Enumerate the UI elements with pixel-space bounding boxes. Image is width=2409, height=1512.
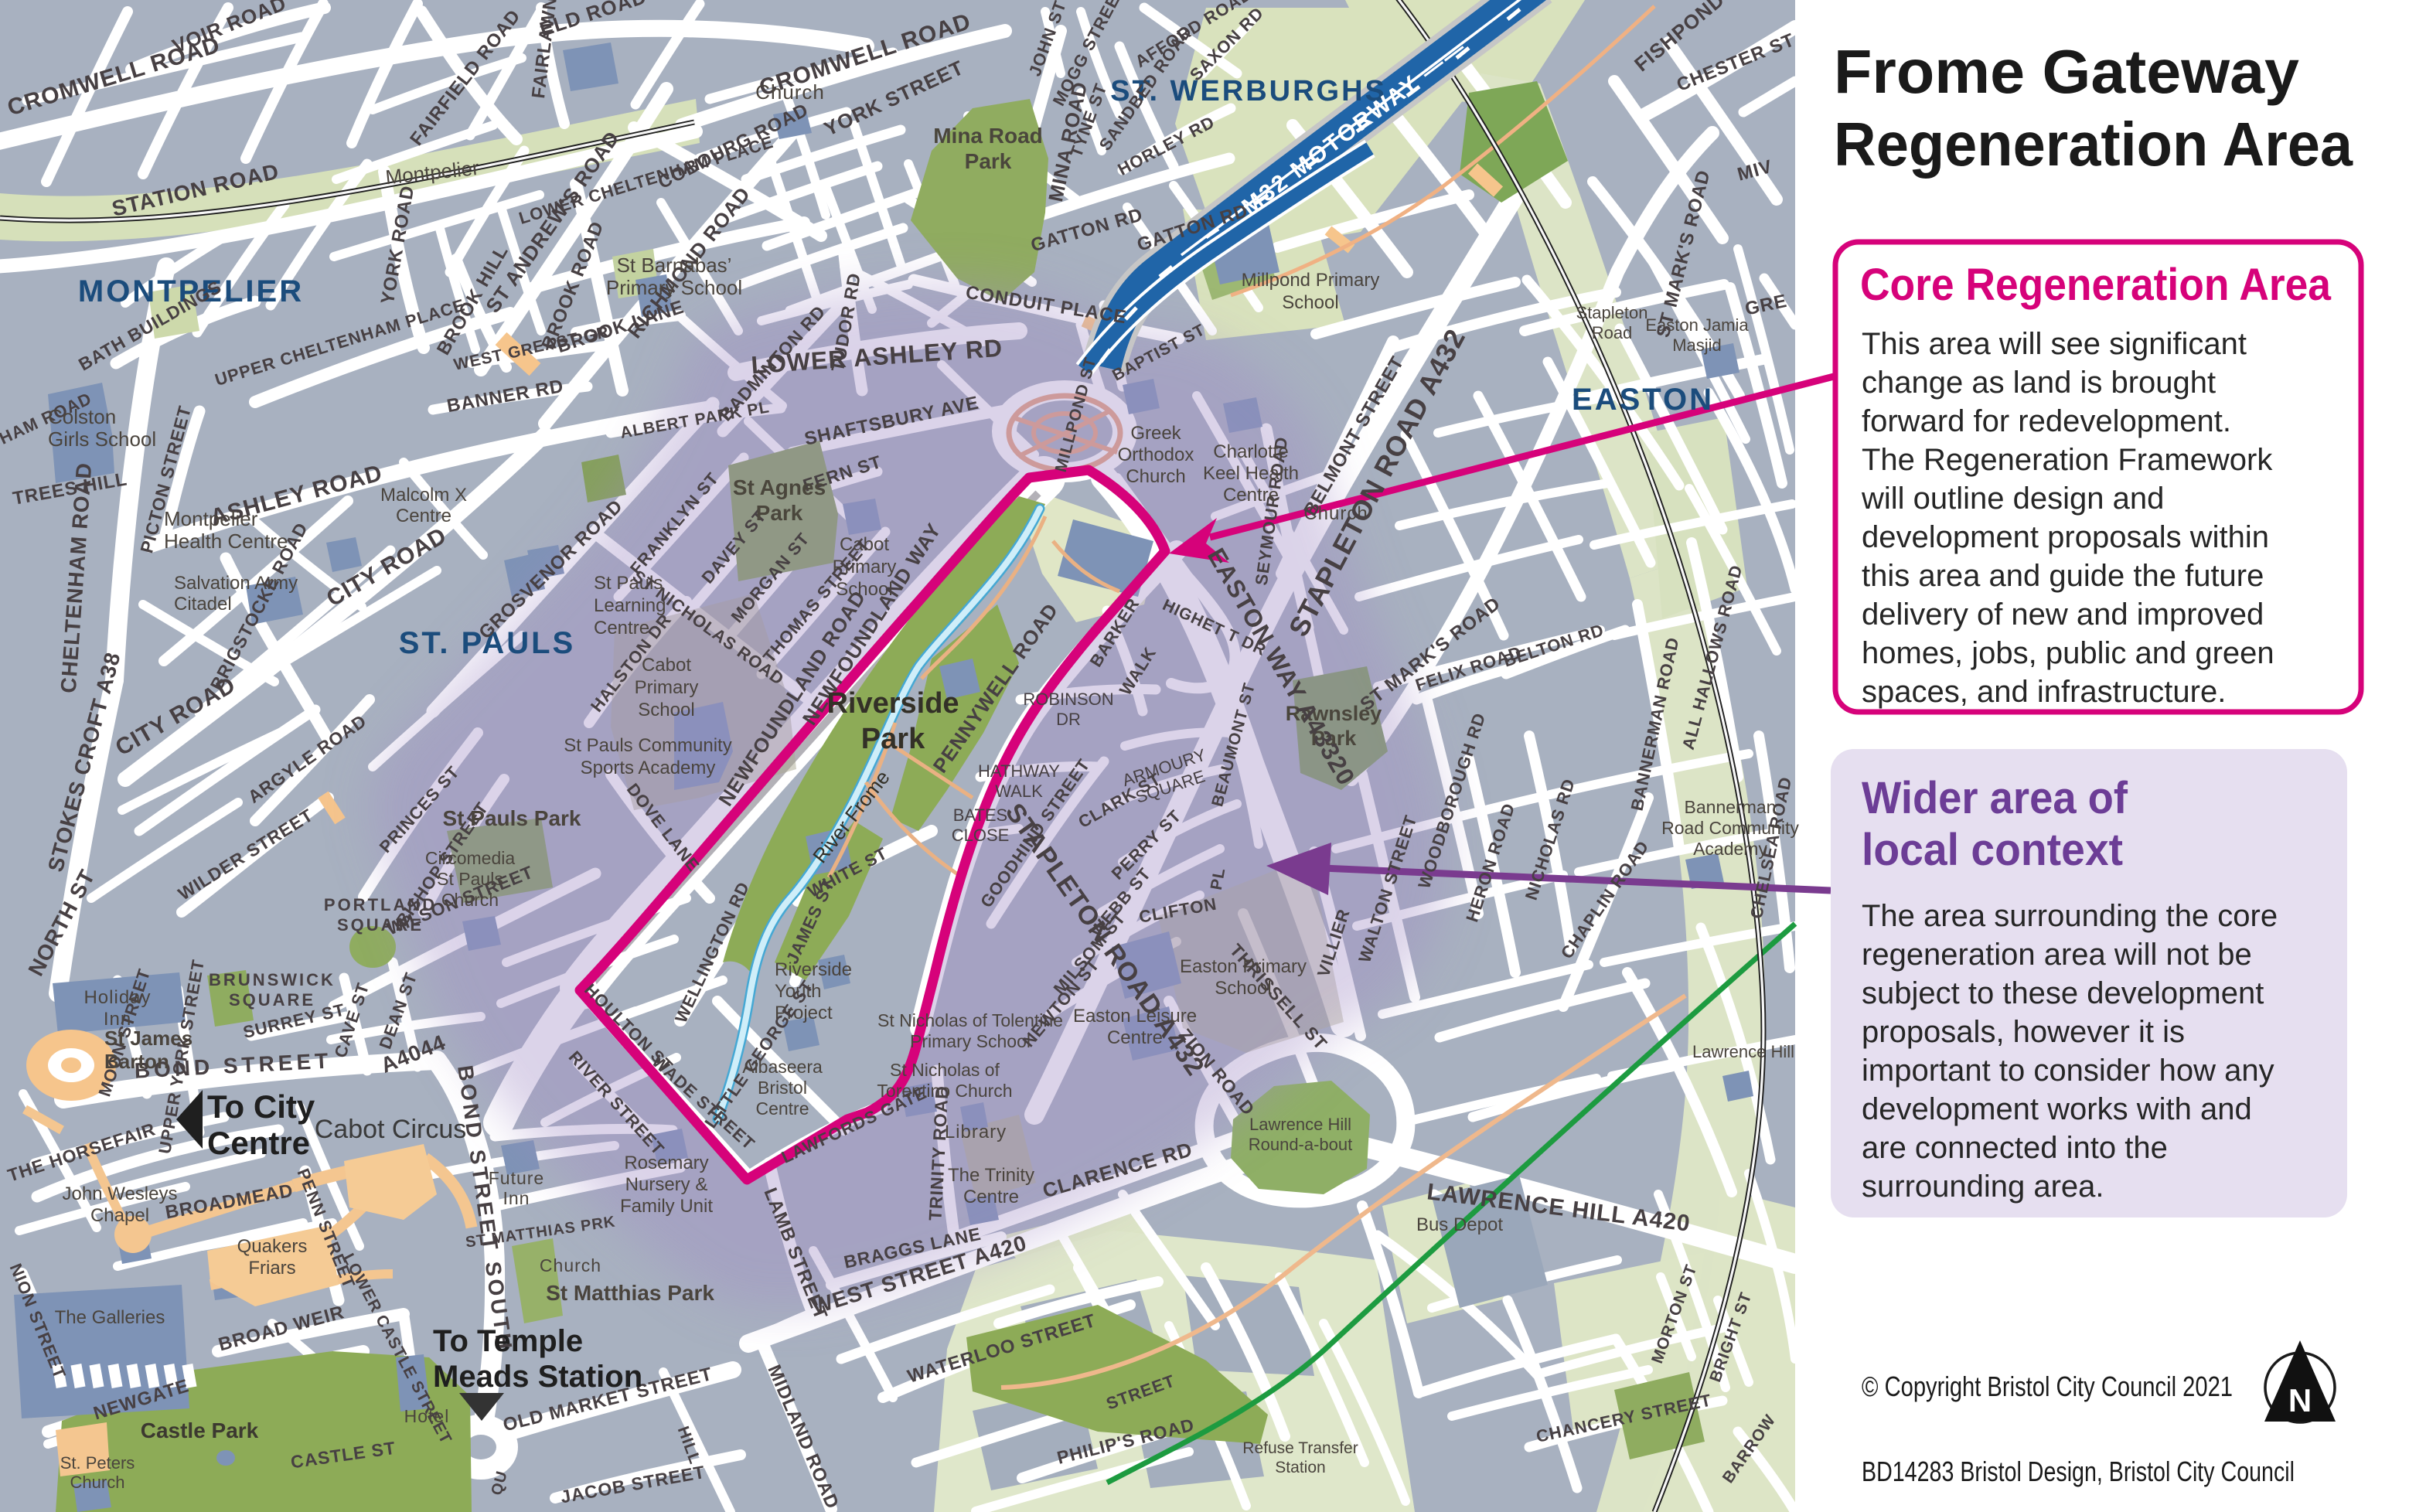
svg-text:EASTON: EASTON <box>1572 383 1714 417</box>
svg-text:Church: Church <box>755 80 825 104</box>
svg-text:To CityCentre: To CityCentre <box>207 1088 315 1161</box>
svg-text:Inn: Inn <box>503 1188 530 1208</box>
svg-text:BRUNSWICK: BRUNSWICK <box>209 970 336 989</box>
svg-text:SQUARE: SQUARE <box>337 915 424 935</box>
svg-text:Core Regeneration Area: Core Regeneration Area <box>1860 260 2332 310</box>
svg-text:St Matthias Park: St Matthias Park <box>546 1281 714 1305</box>
svg-text:St. PetersChurch: St. PetersChurch <box>60 1453 135 1492</box>
svg-text:The Galleries: The Galleries <box>55 1307 165 1328</box>
svg-text:Hotel: Hotel <box>404 1406 450 1426</box>
svg-text:PORTLAND: PORTLAND <box>324 895 437 914</box>
svg-text:St Barnabas’Primary School: St Barnabas’Primary School <box>606 254 742 299</box>
svg-text:Regeneration Area: Regeneration Area <box>1834 110 2353 179</box>
svg-text:Library: Library <box>945 1122 1007 1143</box>
svg-text:Cabot Circus: Cabot Circus <box>315 1115 467 1144</box>
svg-text:CabotPrimarySchool: CabotPrimarySchool <box>635 655 699 720</box>
svg-text:RosemaryNursery &Family Unit: RosemaryNursery &Family Unit <box>620 1153 713 1217</box>
svg-text:Holiday: Holiday <box>83 987 151 1008</box>
svg-text:St Pauls Park: St Pauls Park <box>443 806 581 830</box>
svg-text:Wider area of: Wider area of <box>1862 773 2128 823</box>
svg-text:Frome Gateway: Frome Gateway <box>1834 37 2300 106</box>
svg-text:Lawrence HillRound-a-bout: Lawrence HillRound-a-bout <box>1249 1115 1353 1154</box>
svg-text:Castle Park: Castle Park <box>141 1418 259 1442</box>
svg-text:BATESCLOSE: BATESCLOSE <box>952 805 1010 845</box>
svg-text:Lawrence Hill: Lawrence Hill <box>1692 1042 1794 1061</box>
svg-text:N: N <box>2288 1382 2312 1418</box>
svg-text:Inn: Inn <box>104 1009 131 1030</box>
svg-text:local context: local context <box>1862 825 2123 875</box>
svg-text:BD14283 Bristol Design, Bristo: BD14283 Bristol Design, Bristol City Cou… <box>1862 1456 2295 1487</box>
svg-text:Bus Depot: Bus Depot <box>1416 1214 1503 1235</box>
svg-text:Future: Future <box>489 1168 544 1188</box>
svg-text:Church: Church <box>540 1255 601 1275</box>
svg-text:© Copyright Bristol City Counc: © Copyright Bristol City Council 2021 <box>1862 1371 2233 1402</box>
svg-text:SQUARE: SQUARE <box>229 990 315 1010</box>
